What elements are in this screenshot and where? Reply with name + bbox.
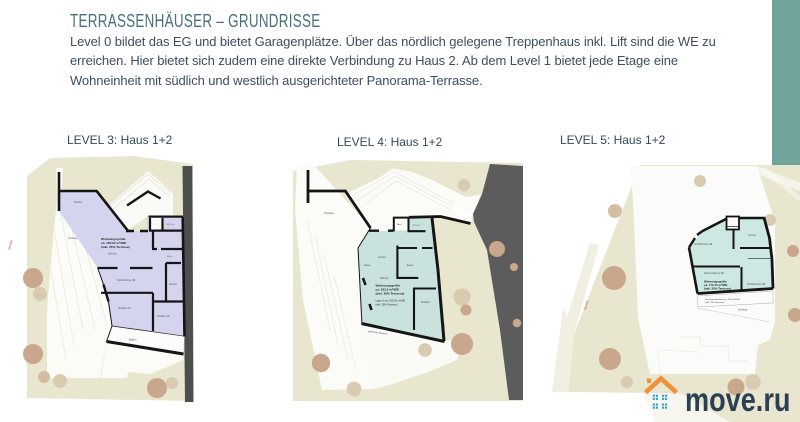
svg-text:Terrasse: Terrasse xyxy=(738,309,748,312)
svg-text:Abst.: Abst. xyxy=(397,223,402,226)
svg-text:WC+Du: WC+Du xyxy=(167,224,176,226)
svg-text:Wohnen: Wohnen xyxy=(108,253,118,256)
svg-text:Kochen: Kochen xyxy=(378,256,387,259)
svg-text:Whg: Whg xyxy=(167,256,172,258)
svg-text:Balkon: Balkon xyxy=(129,339,137,342)
svg-text:Wohnen/Essen AB: Wohnen/Essen AB xyxy=(704,272,724,275)
svg-text:Essen: Essen xyxy=(407,264,414,267)
svg-text:(inkl. 26% Terrasse): (inkl. 26% Terrasse) xyxy=(376,292,405,296)
svg-text:Terrasse: Terrasse xyxy=(324,211,335,215)
svg-text:Zimmer: Zimmer xyxy=(169,283,177,286)
svg-text:Lage ch ca. 200.00 m²/WE: Lage ch ca. 200.00 m²/WE xyxy=(376,300,406,303)
svg-text:Schlafzimmer AB: Schlafzimmer AB xyxy=(694,243,713,246)
svg-text:Terrasse: Terrasse xyxy=(68,237,78,240)
svg-text:Essen: Essen xyxy=(364,264,371,267)
svg-text:Kochen: Kochen xyxy=(748,234,757,237)
svg-text:Schlafen: Schlafen xyxy=(421,301,431,304)
svg-text:move.ru: move.ru xyxy=(685,382,790,418)
svg-text:Straße: Straße xyxy=(7,239,14,250)
svg-text:Whk 01: Whk 01 xyxy=(413,225,421,227)
svg-text:(inkl. 25% Terrasse): (inkl. 25% Terrasse) xyxy=(376,304,398,307)
svg-text:Schlafzimmer AB: Schlafzimmer AB xyxy=(747,283,766,286)
svg-text:Schlafen 02: Schlafen 02 xyxy=(118,307,131,310)
svg-text:(inkl. 25% Terrasse): (inkl. 25% Terrasse) xyxy=(704,287,731,291)
svg-text:Kochen: Kochen xyxy=(74,201,83,204)
svg-text:(inkl. 25% Terrasse): (inkl. 25% Terrasse) xyxy=(101,245,130,249)
svg-text:Schlafen 01: Schlafen 01 xyxy=(157,315,170,318)
svg-text:Wohnen: Wohnen xyxy=(380,277,390,280)
svg-text:Schlafzimmer AB: Schlafzimmer AB xyxy=(117,279,136,282)
svg-text:Dachterrassenhaus ca. 49.5 m²/: Dachterrassenhaus ca. 49.5 m²/WE xyxy=(705,298,740,301)
svg-text:(inkl. 25% Terrasse): (inkl. 25% Terrasse) xyxy=(705,301,725,304)
